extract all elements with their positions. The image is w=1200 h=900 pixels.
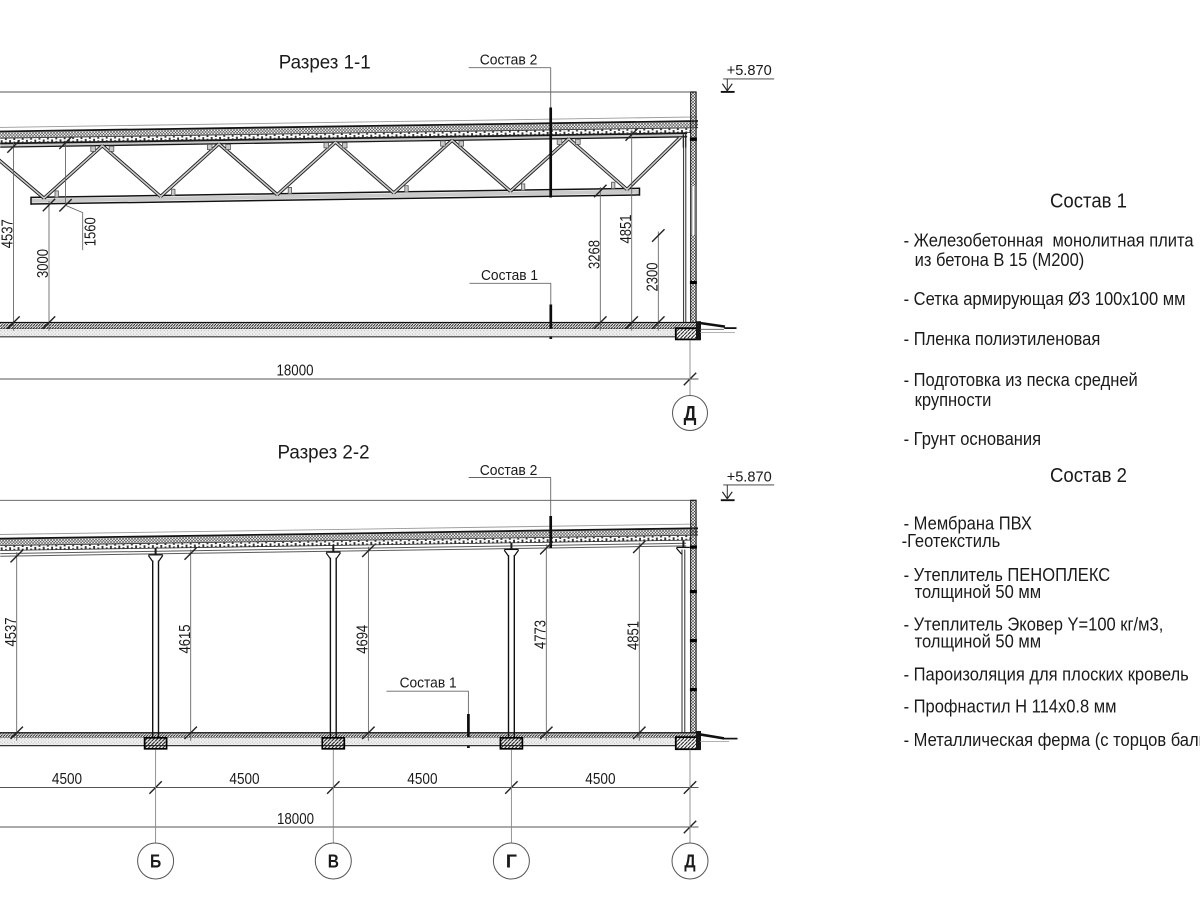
svg-text:4851: 4851 [618, 214, 635, 243]
svg-text:- Пароизоляция для плоских кро: - Пароизоляция для плоских кровель [904, 663, 1189, 684]
svg-text:Д: Д [684, 852, 695, 872]
svg-text:- Профнастил Н 114х0.8 мм: - Профнастил Н 114х0.8 мм [904, 695, 1117, 716]
svg-text:+5.870: +5.870 [727, 62, 772, 79]
svg-text:- Сетка армирующая Ø3 100х100: - Сетка армирующая Ø3 100х100 мм [904, 288, 1186, 309]
svg-text:крупности: крупности [915, 389, 992, 410]
svg-text:Состав 2: Состав 2 [1050, 464, 1127, 487]
svg-text:4537: 4537 [3, 618, 20, 647]
svg-text:4500: 4500 [52, 771, 82, 788]
svg-text:Б: Б [150, 852, 161, 872]
svg-text:Состав 1: Состав 1 [1050, 190, 1127, 213]
svg-text:- Железобетонная монолитная п: - Железобетонная монолитная плита [904, 230, 1195, 251]
svg-text:Состав 2: Состав 2 [480, 463, 538, 479]
svg-text:В: В [328, 852, 339, 872]
svg-text:-Геотекстиль: -Геотекстиль [902, 530, 1001, 551]
svg-text:4500: 4500 [585, 771, 615, 788]
svg-text:Г: Г [506, 852, 517, 872]
svg-text:толщиной 50 мм: толщиной 50 мм [915, 581, 1042, 602]
svg-text:+5.870: +5.870 [727, 468, 772, 485]
svg-text:2300: 2300 [645, 262, 662, 291]
svg-text:4615: 4615 [177, 624, 194, 653]
svg-text:3268: 3268 [587, 240, 604, 269]
svg-text:18000: 18000 [277, 811, 314, 828]
svg-text:4694: 4694 [355, 625, 372, 654]
svg-text:Состав 1: Состав 1 [400, 676, 457, 692]
svg-text:1560: 1560 [83, 217, 100, 246]
svg-text:- Металлическая ферма (с торцо: - Металлическая ферма (с торцов балки) [904, 729, 1200, 750]
svg-text:4537: 4537 [0, 219, 17, 248]
svg-text:3000: 3000 [35, 249, 52, 278]
svg-text:- Подготовка из песка средней: - Подготовка из песка средней [904, 369, 1138, 390]
svg-text:Разрез 2-2: Разрез 2-2 [278, 443, 370, 464]
svg-text:толщиной 50 мм: толщиной 50 мм [915, 631, 1042, 652]
svg-text:4851: 4851 [626, 621, 643, 650]
svg-text:4500: 4500 [229, 771, 259, 788]
svg-text:4773: 4773 [533, 620, 550, 649]
svg-text:18000: 18000 [277, 363, 314, 380]
svg-text:4500: 4500 [407, 771, 437, 788]
svg-text:- Грунт основания: - Грунт основания [904, 428, 1042, 449]
svg-text:Состав 2: Состав 2 [480, 52, 538, 68]
svg-text:- Пленка полиэтиленовая: - Пленка полиэтиленовая [904, 328, 1101, 349]
svg-text:из бетона В 15 (М200): из бетона В 15 (М200) [915, 249, 1085, 270]
svg-text:Разрез 1-1: Разрез 1-1 [279, 53, 371, 74]
svg-text:Состав 1: Состав 1 [481, 268, 538, 284]
svg-text:Д: Д [684, 403, 697, 426]
